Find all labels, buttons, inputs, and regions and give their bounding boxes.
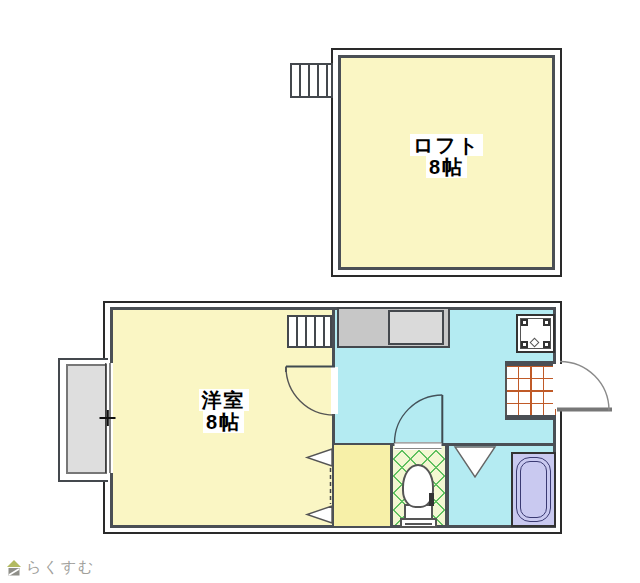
loft-stairs bbox=[290, 63, 333, 98]
room-door-opening bbox=[331, 367, 338, 414]
logo-text: らくすむ bbox=[26, 558, 95, 577]
kitchen-sink bbox=[388, 310, 444, 345]
pan-bolt bbox=[521, 319, 528, 326]
pan-bolt bbox=[543, 341, 550, 348]
floor-plan: ロフト 8帖 洋室 bbox=[0, 0, 640, 583]
entrance-door bbox=[557, 362, 612, 411]
pan-bolt bbox=[543, 319, 550, 326]
toilet-controls bbox=[429, 493, 434, 506]
stairs-room bbox=[287, 315, 332, 348]
logo: らくすむ bbox=[6, 558, 95, 577]
entrance-door-opening bbox=[553, 364, 564, 409]
entrance-tile bbox=[505, 366, 556, 415]
toilet-base bbox=[400, 518, 437, 528]
bath-zone bbox=[511, 452, 556, 527]
bathtub-inner bbox=[520, 461, 547, 518]
loft-room bbox=[338, 55, 555, 270]
entrance-wall-bottom bbox=[505, 415, 556, 420]
pan-bolt bbox=[521, 341, 528, 348]
balcony-deck bbox=[66, 364, 107, 474]
closet bbox=[332, 443, 392, 528]
washing-machine-pan bbox=[516, 314, 555, 353]
toilet-base-line bbox=[405, 523, 432, 525]
house-icon bbox=[6, 560, 22, 576]
